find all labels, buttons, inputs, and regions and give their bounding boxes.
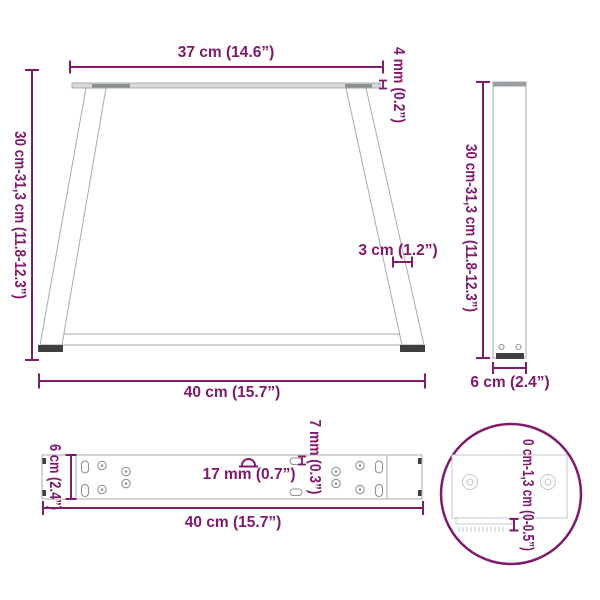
side-view: 30 cm-31,3 cm (11.8-12.3”) 6 cm (2.4”) bbox=[462, 82, 550, 391]
front-right-foot bbox=[400, 345, 425, 352]
plate-corner-mark bbox=[43, 458, 47, 464]
side-top-cap bbox=[493, 82, 526, 87]
diagram-canvas: 37 cm (14.6”) 4 mm (0.2”) 30 cm-31,3 cm … bbox=[0, 0, 600, 600]
front-right-attach bbox=[345, 84, 372, 88]
plate-slot-width-label: 7 mm (0.3”) bbox=[306, 420, 323, 495]
front-right-leg bbox=[346, 88, 424, 345]
product-dimension-diagram: 37 cm (14.6”) 4 mm (0.2”) 30 cm-31,3 cm … bbox=[0, 0, 600, 600]
plate-top-view: 6 cm (2.4”) 17 mm (0.7”) 7 mm (0.3”) 40 … bbox=[42, 420, 423, 532]
side-leg bbox=[493, 82, 526, 358]
front-bottom-width-label: 40 cm (15.7”) bbox=[184, 384, 281, 401]
plate-length-label: 40 cm (15.7”) bbox=[185, 514, 282, 531]
plate-corner-mark bbox=[43, 490, 47, 496]
front-thickness-label: 4 mm (0.2”) bbox=[390, 47, 407, 123]
side-depth-label: 6 cm (2.4”) bbox=[470, 374, 549, 391]
detail-bracket bbox=[452, 455, 567, 518]
side-foot bbox=[496, 353, 524, 359]
front-top-width-label: 37 cm (14.6”) bbox=[178, 44, 275, 61]
detail-foot-plate bbox=[456, 518, 512, 524]
plate-hole-size-label: 17 mm (0.7”) bbox=[202, 466, 295, 483]
front-left-foot bbox=[38, 345, 63, 352]
detail-adjustment-label: 0 cm-1,3 cm (0-0.5”) bbox=[519, 439, 536, 551]
front-leg-width-label: 3 cm (1.2”) bbox=[358, 242, 437, 259]
front-view bbox=[38, 83, 425, 352]
front-height-label: 30 cm-31,3 cm (11.8-12.3”) bbox=[11, 131, 28, 299]
plate-corner-mark bbox=[418, 490, 422, 496]
plate-corner-mark bbox=[418, 458, 422, 464]
front-left-attach bbox=[92, 84, 130, 88]
foot-detail-view: 0 cm-1,3 cm (0-0.5”) bbox=[441, 424, 581, 564]
front-crossbar bbox=[53, 334, 407, 345]
plate-width-label: 6 cm (2.4”) bbox=[46, 444, 63, 510]
side-height-label: 30 cm-31,3 cm (11.8-12.3”) bbox=[462, 144, 479, 312]
front-left-leg bbox=[40, 88, 106, 345]
